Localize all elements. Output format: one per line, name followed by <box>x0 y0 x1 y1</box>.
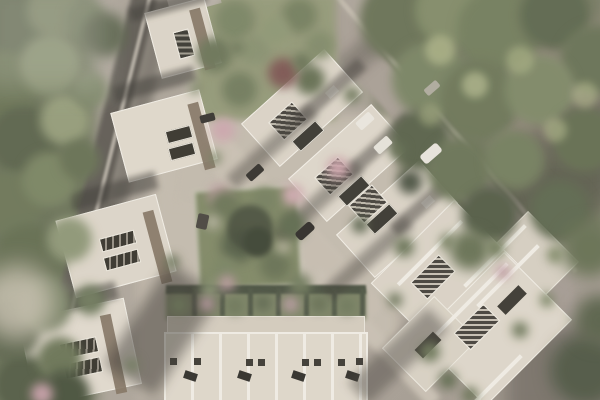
aerial-photo <box>0 0 600 400</box>
haze-top-left <box>0 0 110 90</box>
